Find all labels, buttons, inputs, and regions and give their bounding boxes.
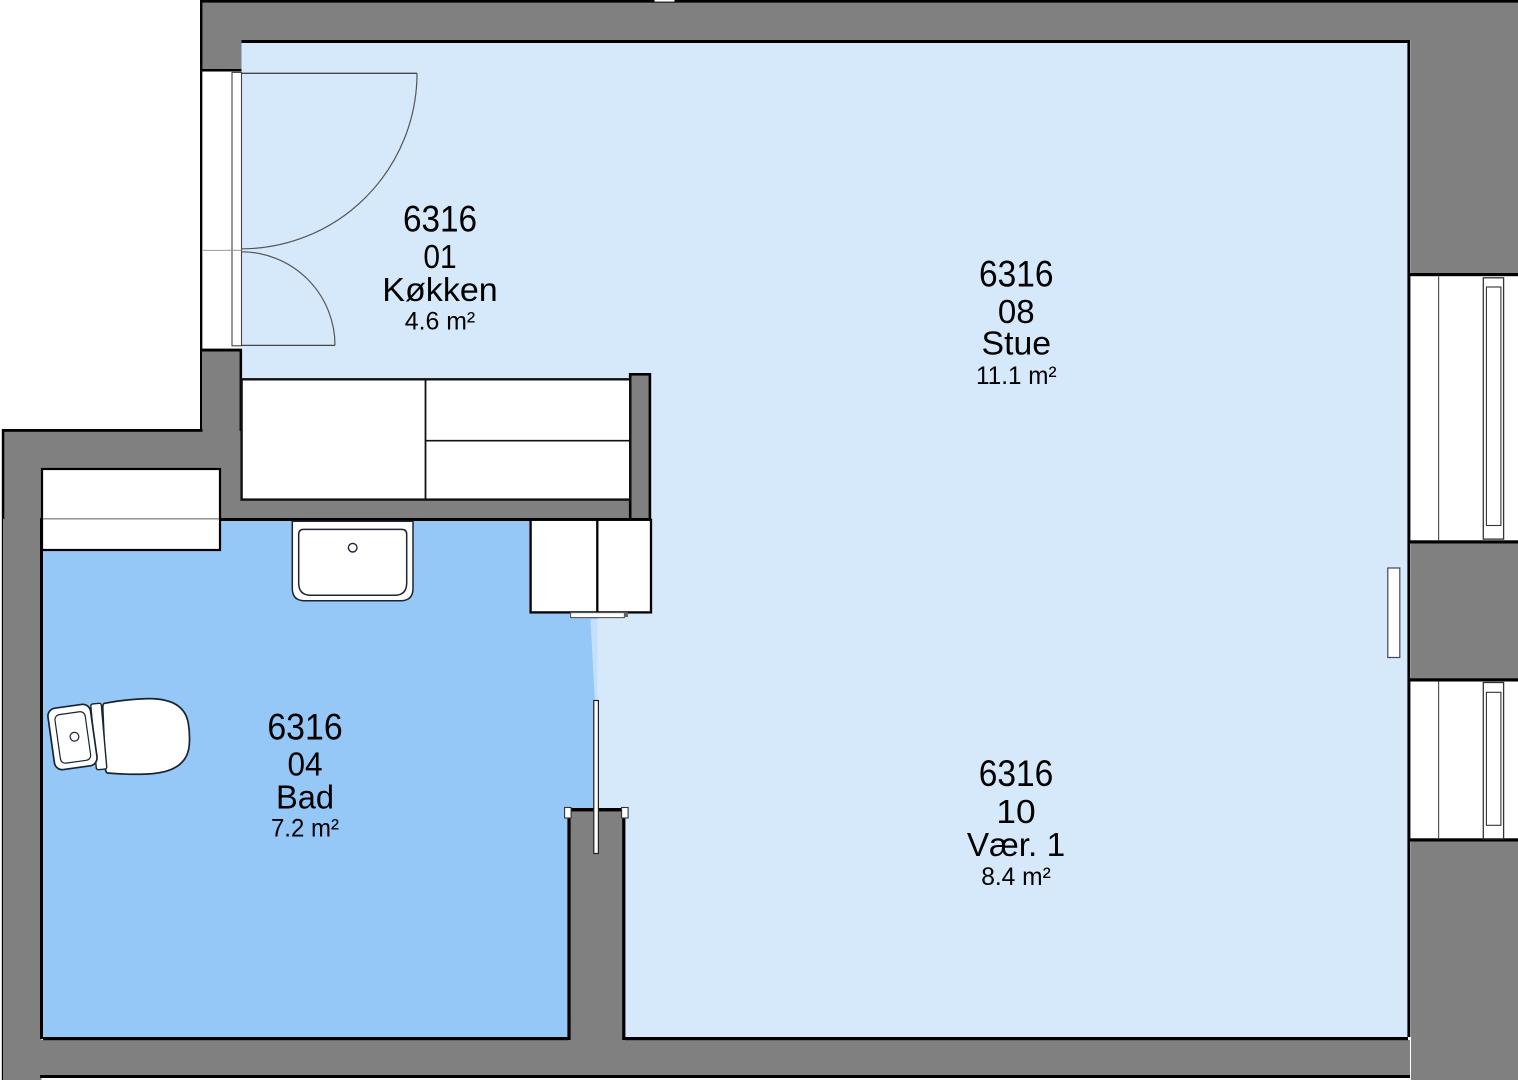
- svg-text:6316: 6316: [979, 753, 1054, 794]
- svg-text:01: 01: [423, 238, 456, 275]
- svg-text:6316: 6316: [979, 253, 1054, 294]
- svg-text:8.4 m²: 8.4 m²: [981, 863, 1051, 891]
- svg-text:Stue: Stue: [982, 325, 1052, 362]
- svg-text:Vær. 1: Vær. 1: [967, 826, 1065, 863]
- svg-text:6316: 6316: [403, 199, 477, 240]
- svg-text:10: 10: [996, 793, 1035, 830]
- svg-text:7.2 m²: 7.2 m²: [271, 814, 339, 842]
- svg-text:04: 04: [287, 745, 322, 782]
- svg-text:11.1 m²: 11.1 m²: [976, 362, 1057, 390]
- svg-text:4.6 m²: 4.6 m²: [405, 307, 475, 335]
- svg-text:Bad: Bad: [276, 778, 334, 815]
- svg-text:6316: 6316: [267, 707, 342, 748]
- svg-text:Køkken: Køkken: [382, 271, 498, 308]
